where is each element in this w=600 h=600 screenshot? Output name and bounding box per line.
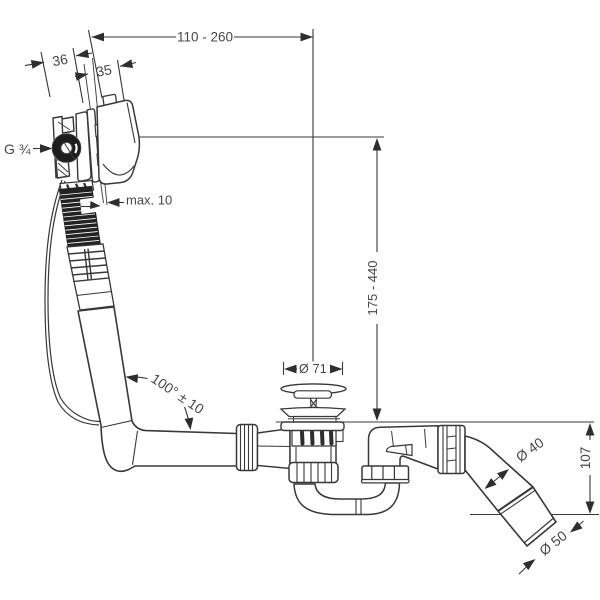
svg-text:175 - 440: 175 - 440 xyxy=(365,261,380,316)
svg-text:max. 10: max. 10 xyxy=(126,193,172,208)
svg-text:107: 107 xyxy=(578,447,593,470)
svg-text:36: 36 xyxy=(51,51,69,69)
svg-text:110 - 260: 110 - 260 xyxy=(177,30,233,45)
svg-text:35: 35 xyxy=(95,61,113,79)
svg-text:Ø 71: Ø 71 xyxy=(299,362,327,376)
svg-text:G ¾: G ¾ xyxy=(4,141,31,157)
